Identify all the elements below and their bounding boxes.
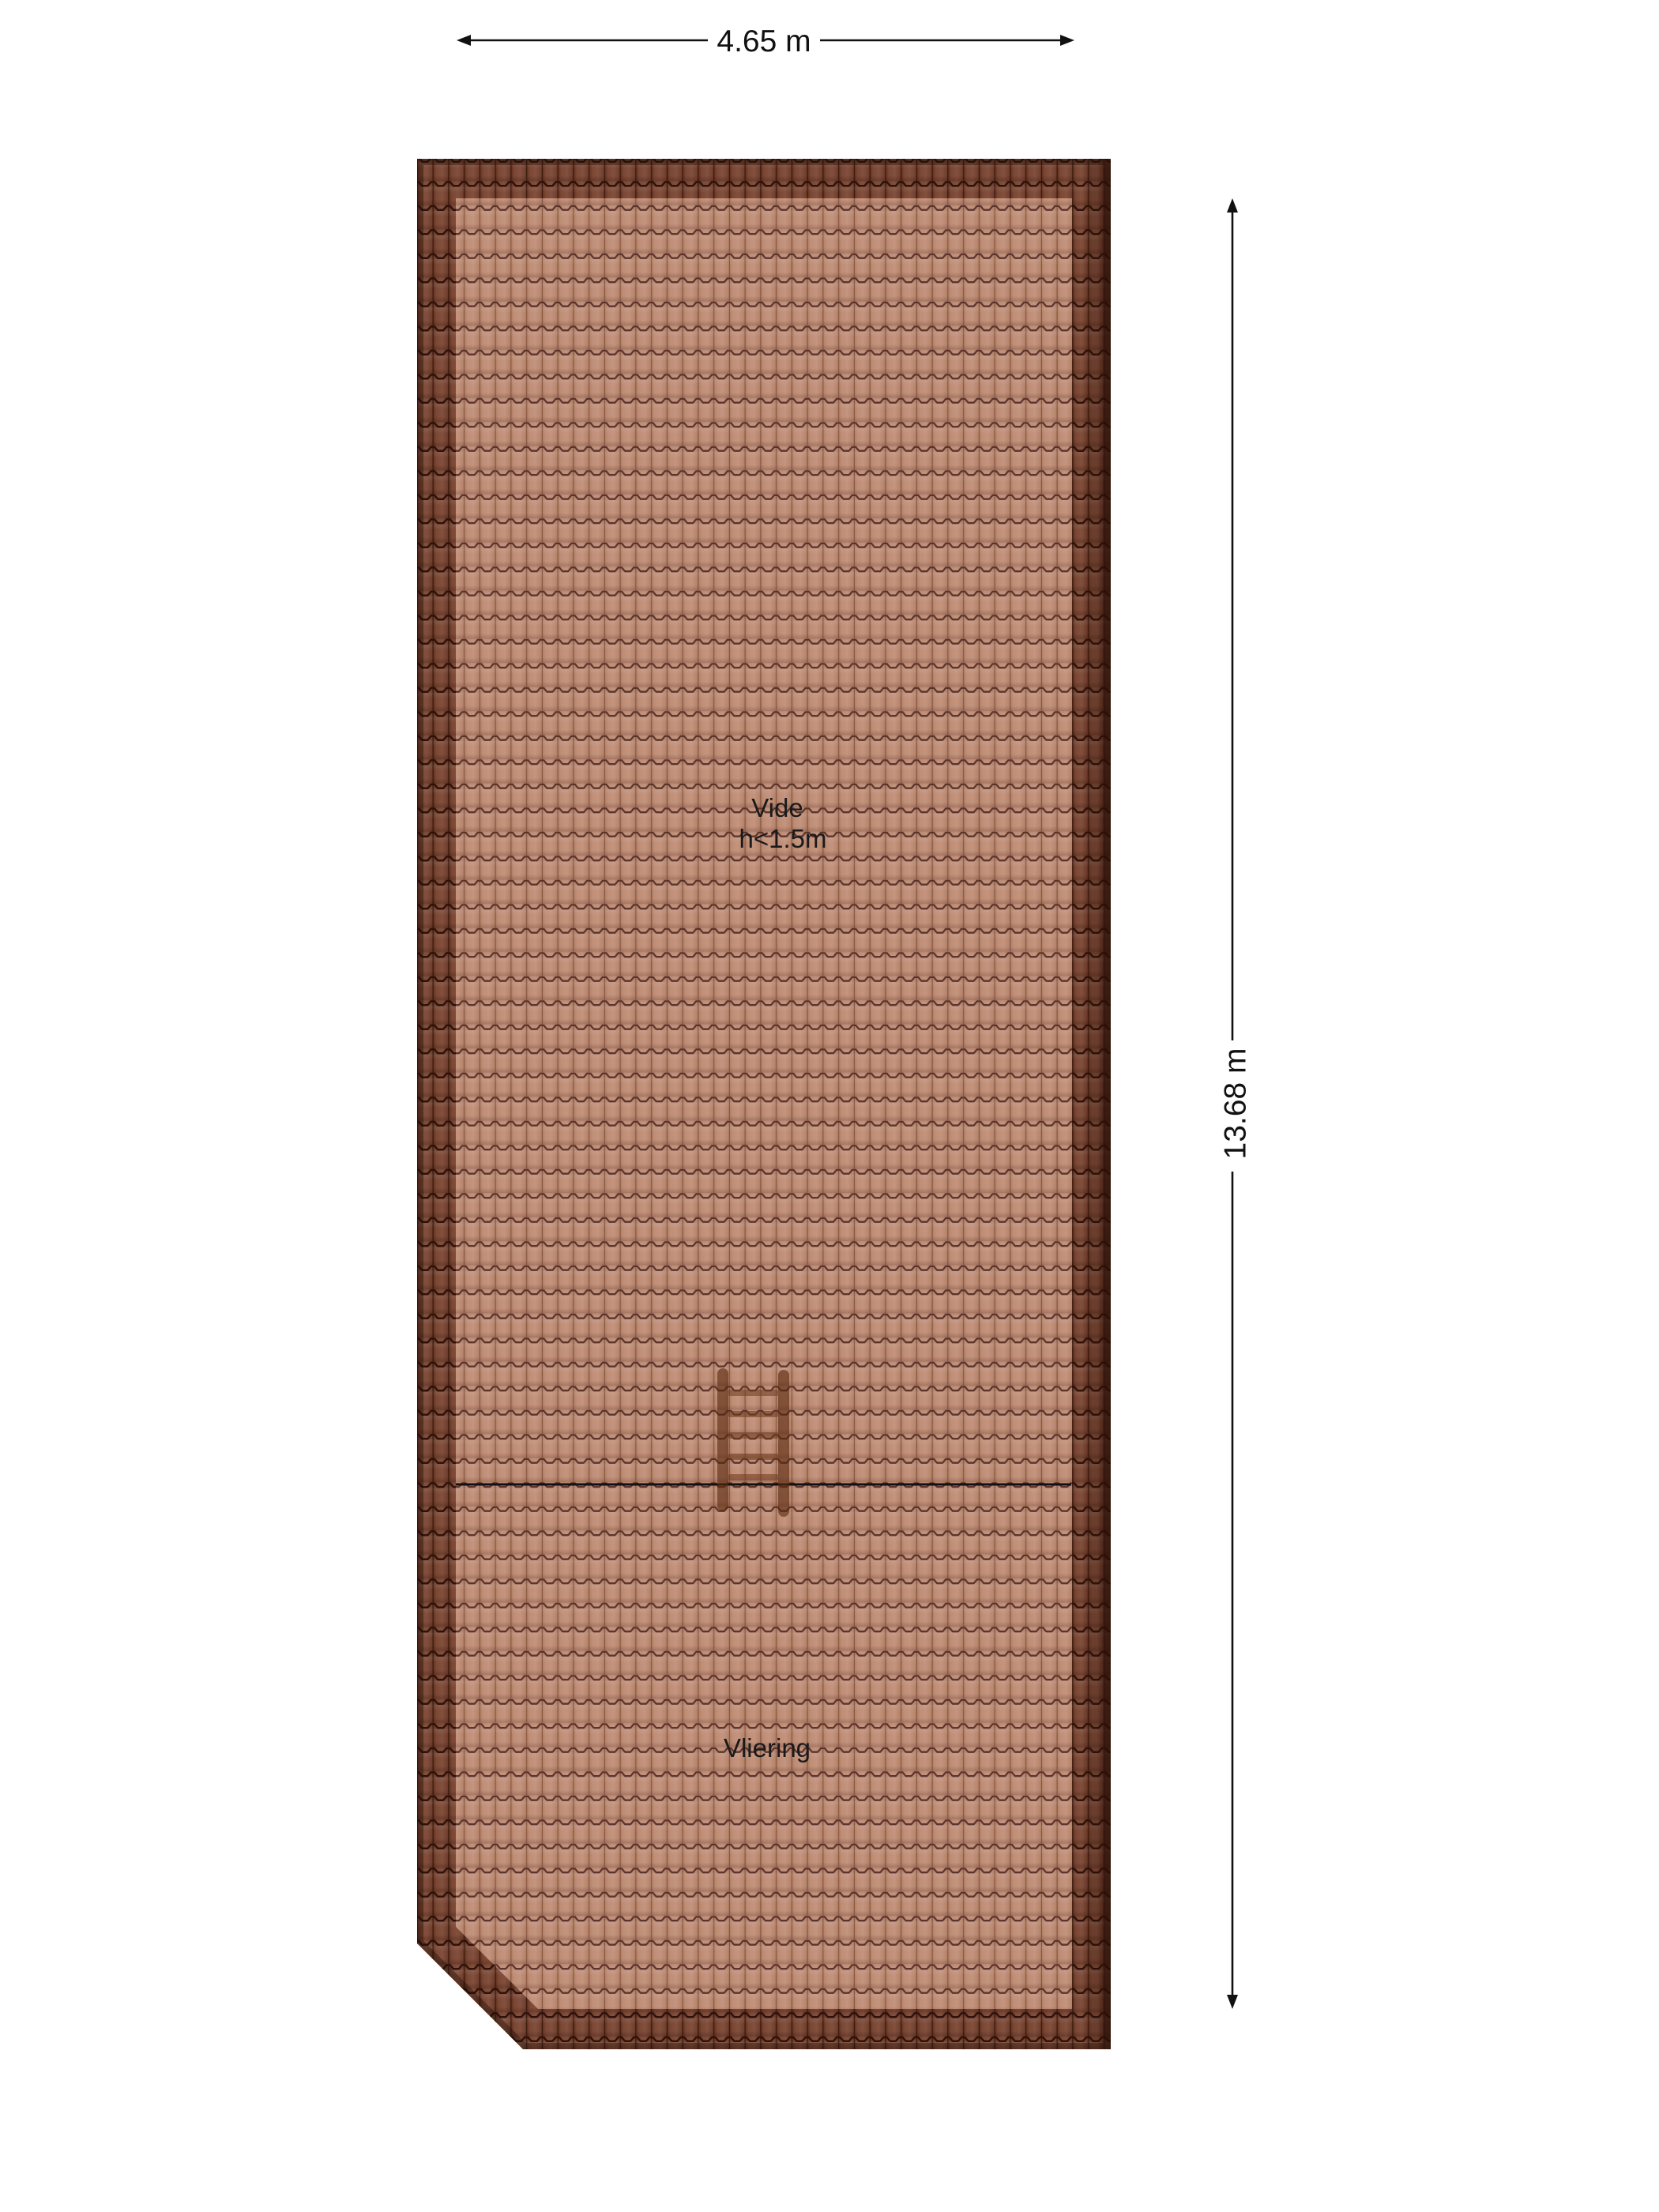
svg-text:4.65 m: 4.65 m: [717, 24, 811, 58]
svg-text:13.68 m: 13.68 m: [1218, 1048, 1252, 1160]
svg-text:h<1.5m: h<1.5m: [739, 824, 827, 853]
svg-text:Vliering: Vliering: [724, 1733, 811, 1762]
svg-text:Vide: Vide: [751, 793, 803, 822]
